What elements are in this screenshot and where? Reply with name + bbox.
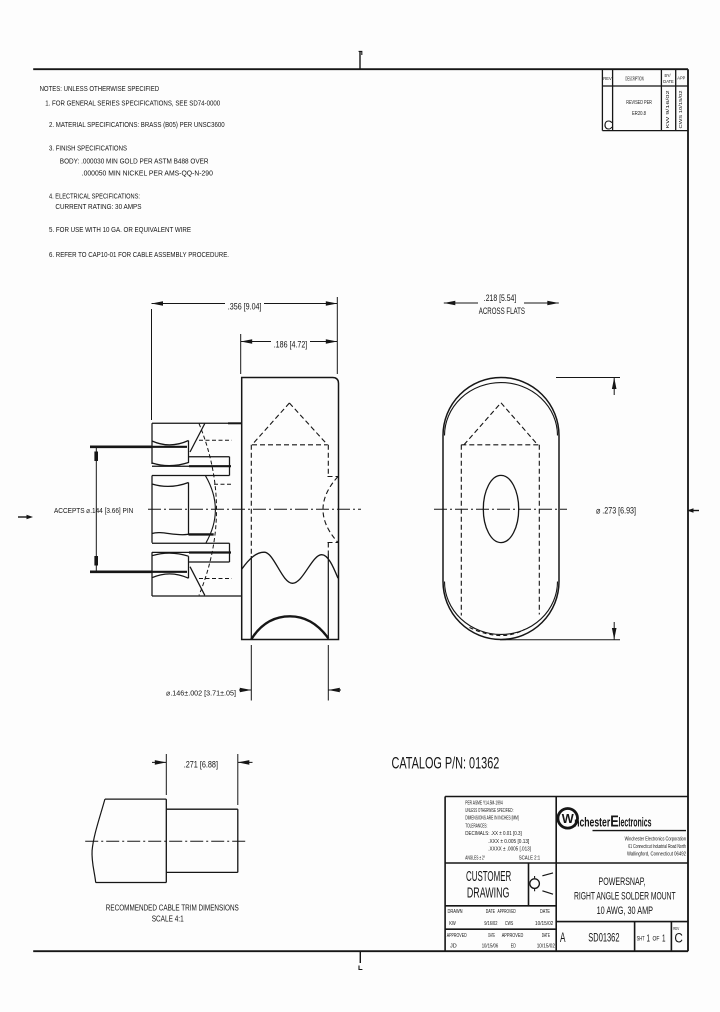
svg-text:10 AWG, 30 AMP: 10 AWG, 30 AMP <box>597 905 653 917</box>
svg-text:DIMENSIONS ARE IN INCHES [MM]: DIMENSIONS ARE IN INCHES [MM] <box>465 816 519 822</box>
svg-text:1: 1 <box>647 934 651 945</box>
svg-text:SD01362: SD01362 <box>588 930 619 944</box>
svg-text:ED: ED <box>511 944 516 950</box>
svg-text:C: C <box>604 118 613 132</box>
svg-text:DATE: DATE <box>542 933 551 939</box>
svg-text:1: 1 <box>662 934 666 945</box>
svg-text:W: W <box>562 811 575 826</box>
svg-text:DECIMALS: .XX ± 0.01 [0.3]: DECIMALS: .XX ± 0.01 [0.3] <box>465 831 522 837</box>
svg-text:POWERSNAP,: POWERSNAP, <box>599 876 646 888</box>
svg-text:.XXXX ± .0005 [.013]: .XXXX ± .0005 [.013] <box>488 847 531 853</box>
svg-text:KW: KW <box>449 921 456 927</box>
svg-text:CUSTOMER: CUSTOMER <box>466 869 511 885</box>
svg-text:APPROVED: APPROVED <box>498 909 516 915</box>
svg-text:DATE: DATE <box>488 933 495 939</box>
svg-text:APPROVED: APPROVED <box>502 933 524 939</box>
svg-text:Winchester Electronics Corpora: Winchester Electronics Corporation <box>625 837 686 843</box>
svg-text:CATALOG P/N: 01362: CATALOG P/N: 01362 <box>392 753 500 772</box>
svg-text:OF: OF <box>653 937 660 943</box>
svg-text:10/15/06: 10/15/06 <box>482 944 499 950</box>
svg-text:APPROVED: APPROVED <box>447 933 467 939</box>
svg-text:⌀ .273 [6.93]: ⌀ .273 [6.93] <box>596 506 636 516</box>
svg-text:BY/: BY/ <box>665 73 672 78</box>
svg-text:ACROSS FLATS: ACROSS FLATS <box>479 306 525 316</box>
svg-text:2. MATERIAL SPECIFICATIONS: BR: 2. MATERIAL SPECIFICATIONS: BRASS (B05) … <box>49 120 225 129</box>
svg-text:APP: APP <box>677 76 685 81</box>
svg-text:BODY: .000030 MIN GOLD PER AST: BODY: .000030 MIN GOLD PER ASTM B488 OVE… <box>60 157 209 166</box>
svg-text:JD: JD <box>450 944 457 950</box>
svg-text:.XXX ± 0.005 [0.13]: .XXX ± 0.005 [0.13] <box>488 839 530 845</box>
svg-text:REVISED PER: REVISED PER <box>626 100 652 106</box>
svg-text:.186 [4.72]: .186 [4.72] <box>274 340 308 350</box>
svg-text:PER ASME Y14.5M-1994: PER ASME Y14.5M-1994 <box>465 800 502 806</box>
svg-text:6. REFER TO CAP10-01 FOR CABLE: 6. REFER TO CAP10-01 FOR CABLE ASSEMBLY … <box>49 250 229 259</box>
svg-text:61 Connecticut Industrial Road: 61 Connecticut Industrial Road North <box>628 844 686 850</box>
svg-text:UNLESS OTHERWISE SPECIFIED:: UNLESS OTHERWISE SPECIFIED: <box>465 808 513 814</box>
svg-text:CURRENT RATING: 30 AMPS: CURRENT RATING: 30 AMPS <box>55 202 141 211</box>
svg-text:C: C <box>674 931 683 946</box>
svg-text:nchester: nchester <box>574 816 610 830</box>
svg-text:.356 [9.04]: .356 [9.04] <box>228 301 262 311</box>
svg-text:RIGHT ANGLE SOLDER MOUNT: RIGHT ANGLE SOLDER MOUNT <box>574 891 676 903</box>
svg-text:ER20.8: ER20.8 <box>632 111 646 117</box>
svg-text:Wallingford, Connecticut 06492: Wallingford, Connecticut 06492 <box>627 852 686 858</box>
svg-text:DATE: DATE <box>663 79 673 84</box>
svg-text:SCALE 2:1: SCALE 2:1 <box>519 856 540 862</box>
svg-text:SHT: SHT <box>637 937 645 943</box>
svg-text:9/16/02: 9/16/02 <box>484 921 497 927</box>
svg-text:lectronics: lectronics <box>619 816 652 830</box>
svg-text:ACCEPTS ⌀.144 [3.66] PIN: ACCEPTS ⌀.144 [3.66] PIN <box>54 506 133 515</box>
svg-text:RECOMMENDED CABLE TRIM DIMENSI: RECOMMENDED CABLE TRIM DIMENSIONS <box>106 903 239 913</box>
svg-text:REV: REV <box>603 76 612 81</box>
svg-text:SCALE 4:1: SCALE 4:1 <box>152 914 184 924</box>
svg-text:DATE: DATE <box>486 909 496 915</box>
svg-text:DESCRIPTION: DESCRIPTION <box>625 77 644 83</box>
svg-text:A: A <box>560 930 566 945</box>
svg-text:3. FINISH SPECIFICATIONS: 3. FINISH SPECIFICATIONS <box>49 144 127 153</box>
svg-text:10/15/02: 10/15/02 <box>537 944 555 950</box>
svg-text:DATE: DATE <box>540 909 550 915</box>
svg-text:DRAWN: DRAWN <box>448 909 463 915</box>
svg-text:.218 [5.54]: .218 [5.54] <box>484 293 517 303</box>
svg-text:DRAWING: DRAWING <box>467 886 510 902</box>
svg-text:TOLERANCES:: TOLERANCES: <box>465 823 487 829</box>
svg-text:⌀.146±.002 [3.71±.05]: ⌀.146±.002 [3.71±.05] <box>166 688 236 697</box>
svg-text:CWS 10/15/02: CWS 10/15/02 <box>678 90 683 129</box>
svg-text:KW 9/16/02: KW 9/16/02 <box>665 90 670 129</box>
svg-text:.000050 MIN NICKEL PER AMS-QQ-: .000050 MIN NICKEL PER AMS-QQ-N-290 <box>82 168 213 177</box>
svg-text:10/15/02: 10/15/02 <box>535 921 553 927</box>
svg-text:.271 [6.88]: .271 [6.88] <box>184 760 218 770</box>
svg-text:ANGLES ± 2°: ANGLES ± 2° <box>465 856 485 862</box>
svg-text:CWS: CWS <box>505 921 514 927</box>
svg-text:1. FOR GENERAL SERIES SPECIFIC: 1. FOR GENERAL SERIES SPECIFICATIONS, SE… <box>45 99 220 108</box>
svg-text:NOTES: UNLESS OTHERWISE SPECIF: NOTES: UNLESS OTHERWISE SPECIFIED <box>40 84 160 93</box>
svg-text:5. FOR USE WITH 10 GA. OR EQUI: 5. FOR USE WITH 10 GA. OR EQUIVALENT WIR… <box>49 225 191 234</box>
svg-text:4. ELECTRICAL SPECIFICATIONS:: 4. ELECTRICAL SPECIFICATIONS: <box>49 192 140 201</box>
